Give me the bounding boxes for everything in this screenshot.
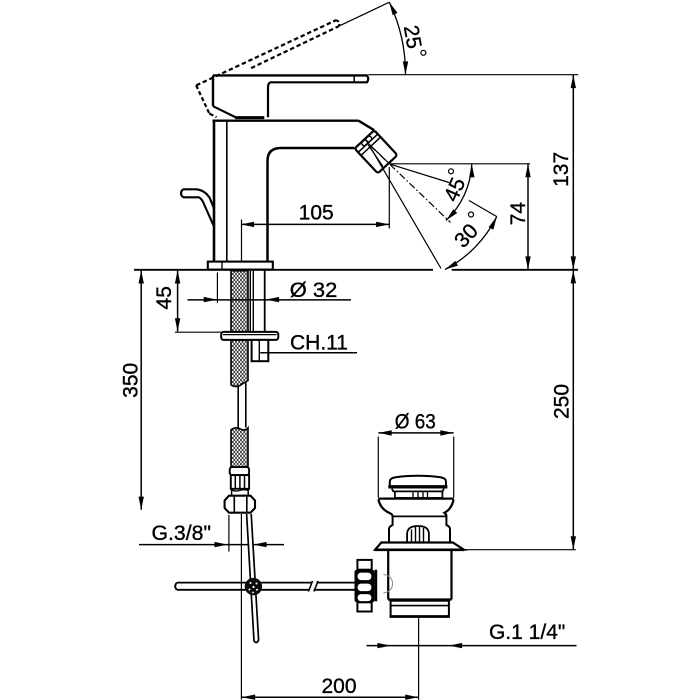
svg-text:Ø 32: Ø 32 bbox=[290, 279, 338, 302]
svg-text:G.1 1/4": G.1 1/4" bbox=[489, 621, 565, 644]
svg-text:137: 137 bbox=[550, 152, 573, 187]
svg-text:250: 250 bbox=[551, 384, 574, 419]
svg-text:25: 25 bbox=[399, 24, 426, 51]
svg-text:74: 74 bbox=[507, 202, 530, 226]
svg-text:45: 45 bbox=[153, 286, 176, 309]
svg-text:200: 200 bbox=[321, 675, 356, 698]
svg-text:G.3/8": G.3/8" bbox=[152, 522, 212, 545]
svg-text:350: 350 bbox=[120, 363, 143, 398]
svg-text:105: 105 bbox=[299, 202, 334, 225]
svg-text:CH.11: CH.11 bbox=[290, 331, 348, 354]
svg-text:Ø 63: Ø 63 bbox=[395, 411, 436, 434]
